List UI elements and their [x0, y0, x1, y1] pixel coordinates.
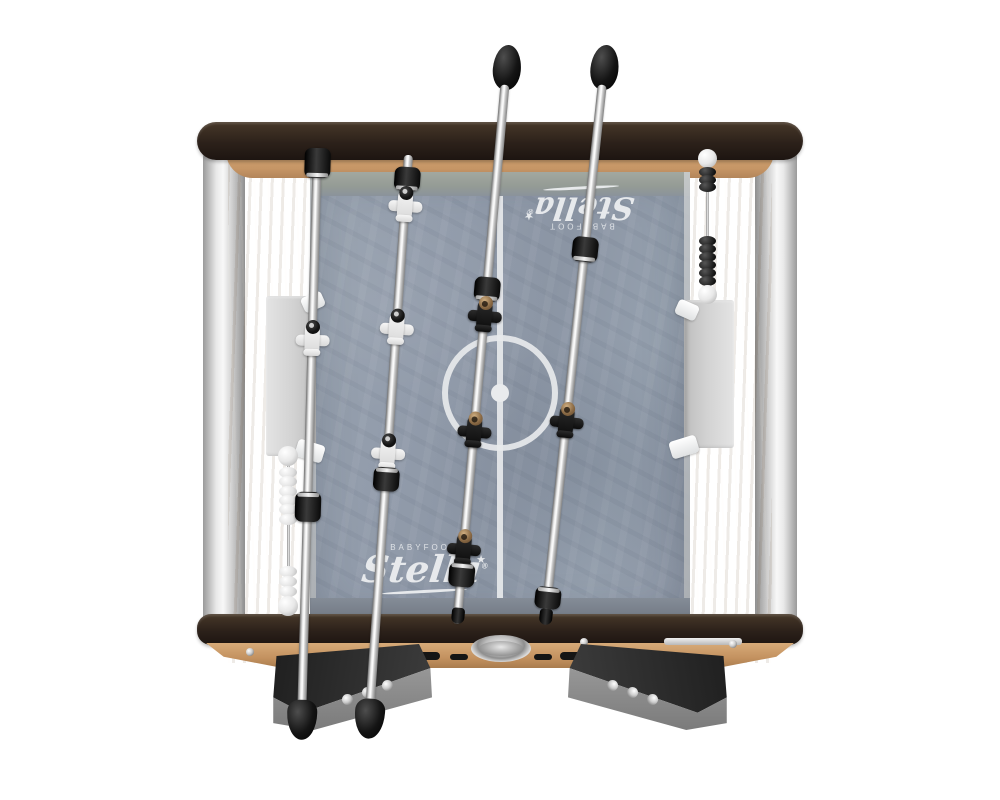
- leg-right: [568, 644, 730, 730]
- playfield: BABYFOOT Stella® ★ BABYFOOT Stella® ★: [310, 172, 690, 622]
- screw: [729, 640, 737, 648]
- screw: [627, 687, 638, 698]
- player-white: [293, 321, 330, 356]
- screw: [382, 680, 393, 691]
- center-spot: [491, 384, 509, 402]
- ball-return-slot: [450, 654, 468, 660]
- screw: [342, 694, 353, 705]
- rod-handle: [352, 698, 385, 740]
- bumper: [294, 492, 321, 523]
- bumper: [303, 148, 330, 179]
- field-logo-far: BABYFOOT Stella® ★: [526, 186, 636, 229]
- goal-right: [684, 300, 734, 448]
- player-black: [464, 296, 503, 333]
- foosball-table-product-image: BABYFOOT Stella® ★ BABYFOOT Stella® ★: [0, 0, 1000, 800]
- screw: [647, 694, 658, 705]
- player-white: [368, 434, 406, 470]
- player-black: [546, 402, 585, 440]
- player-white: [385, 187, 423, 223]
- player-white: [377, 309, 415, 345]
- bumper: [570, 236, 599, 264]
- bumper: [533, 586, 561, 611]
- screw: [246, 648, 254, 656]
- player-black: [454, 412, 493, 449]
- bumper: [372, 466, 400, 492]
- rod-end-cap: [450, 607, 464, 624]
- bumper: [447, 562, 475, 588]
- logo-brand-script: Stella®: [524, 192, 638, 221]
- ball-return-cup-center: [479, 641, 523, 656]
- star-icon: ★: [524, 209, 534, 222]
- rod-handle: [285, 699, 316, 740]
- ball-return-slot: [534, 654, 552, 660]
- screw: [607, 680, 618, 691]
- player-black: [444, 529, 483, 566]
